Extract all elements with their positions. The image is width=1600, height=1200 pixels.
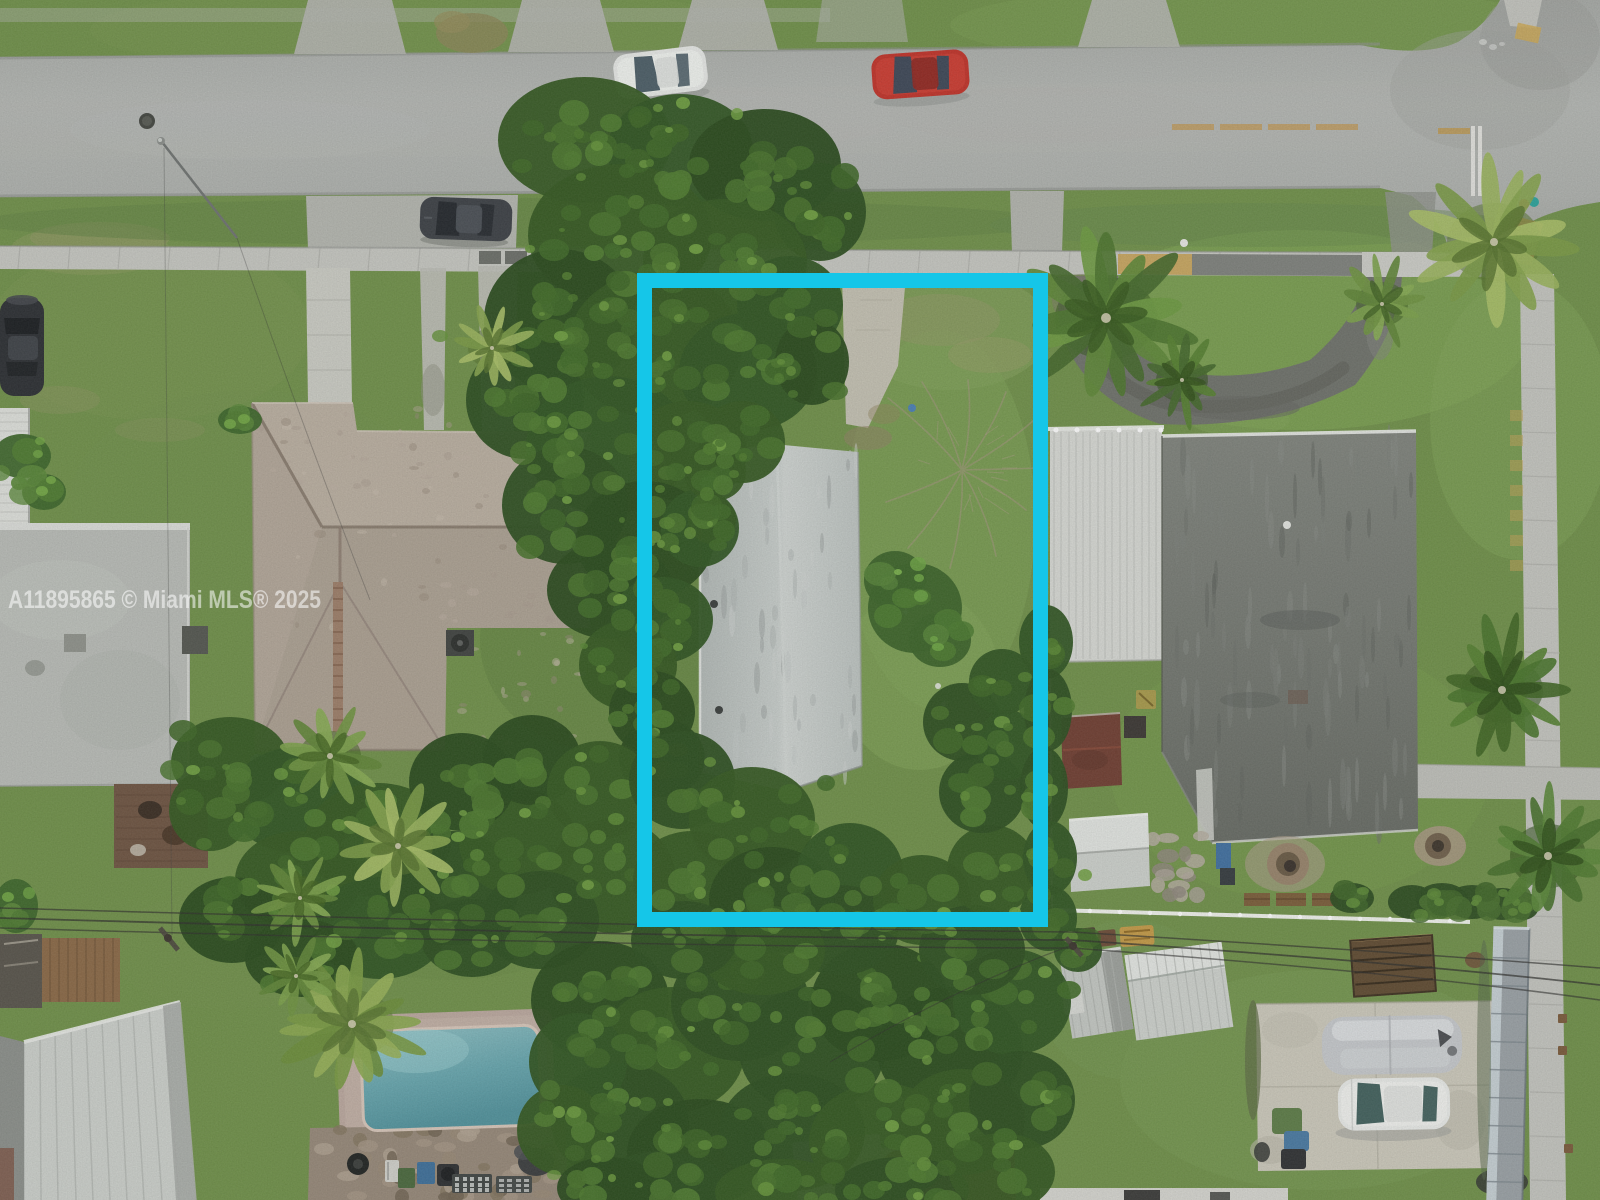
svg-text:A11895865 © Miami MLS® 2025: A11895865 © Miami MLS® 2025 — [8, 586, 321, 614]
